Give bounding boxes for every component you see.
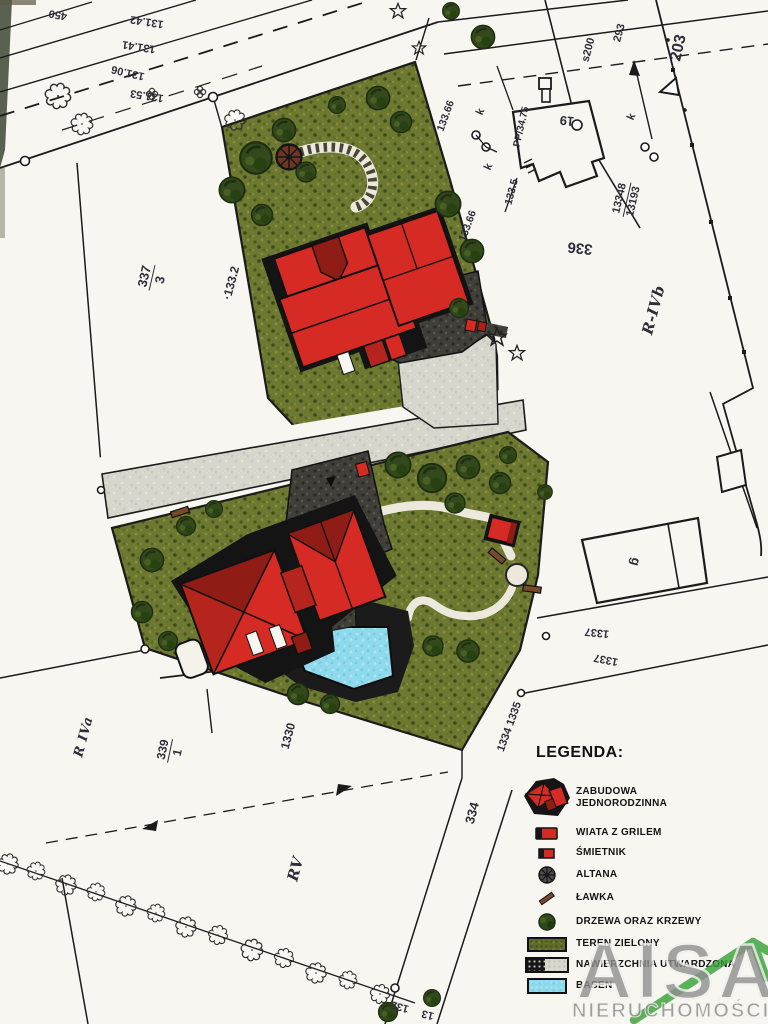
pool-icon	[518, 978, 576, 994]
legend-title: LEGENDA:	[536, 744, 768, 762]
legend-item: ŚMIETNIK	[518, 847, 768, 860]
legend-item-label: NAWIERZCHNIA UTWARDZONA	[576, 959, 735, 972]
green-area-icon	[518, 937, 576, 952]
gazebo-icon	[518, 865, 576, 885]
grill-shelter-icon	[518, 825, 576, 842]
legend-item-label: WIATA Z GRILEM	[576, 827, 662, 840]
trees-icon	[518, 912, 576, 932]
paved-surface-icon	[518, 957, 576, 973]
legend-item: ZABUDOWA JEDNORODZINNA	[518, 776, 768, 820]
legend-item-label: TEREN ZIELONY	[576, 938, 660, 951]
legend-item: NAWIERZCHNIA UTWARDZONA	[518, 957, 768, 973]
house-cluster-icon	[518, 776, 576, 820]
legend-item-label: ŁAWKA	[576, 892, 614, 905]
trash-shed-icon	[518, 847, 576, 860]
legend-item-label: ŚMIETNIK	[576, 847, 626, 860]
legend-item: BASEN	[518, 978, 768, 994]
site-plan-document: 450131.42131.41131.06131.533373·133.2133…	[0, 0, 768, 1024]
legend-item-label: DRZEWA ORAZ KRZEWY	[576, 916, 702, 929]
legend-item-label: ALTANA	[576, 869, 617, 882]
legend-item: DRZEWA ORAZ KRZEWY	[518, 912, 768, 932]
legend-item-label: BASEN	[576, 980, 613, 993]
legend-item: ALTANA	[518, 865, 768, 885]
bench-icon	[518, 890, 576, 907]
stone-circle	[506, 564, 528, 586]
legend: LEGENDA: ZABUDOWA JEDNORODZINNA WIATA Z …	[518, 744, 768, 999]
legend-item: WIATA Z GRILEM	[518, 825, 768, 842]
legend-item-label: ZABUDOWA JEDNORODZINNA	[576, 786, 671, 811]
legend-item: ŁAWKA	[518, 890, 768, 907]
legend-item: TEREN ZIELONY	[518, 937, 768, 952]
